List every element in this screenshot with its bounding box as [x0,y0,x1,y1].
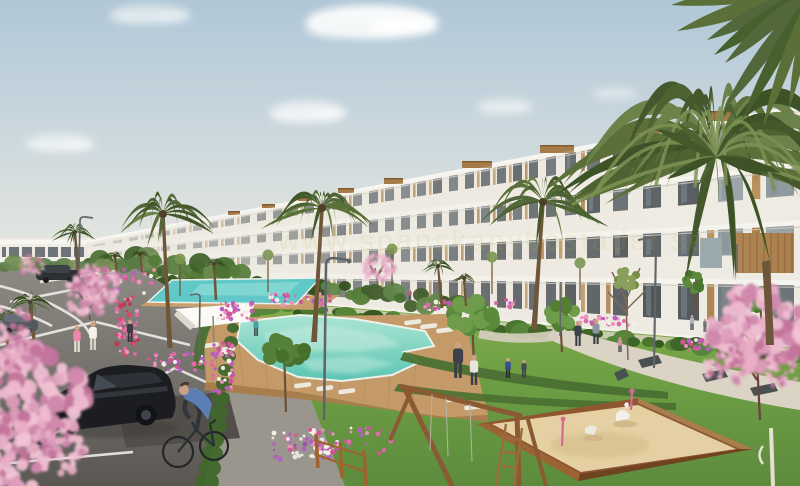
svg-text:www.spanskanybostader.se: www.spanskanybostader.se [277,225,708,257]
